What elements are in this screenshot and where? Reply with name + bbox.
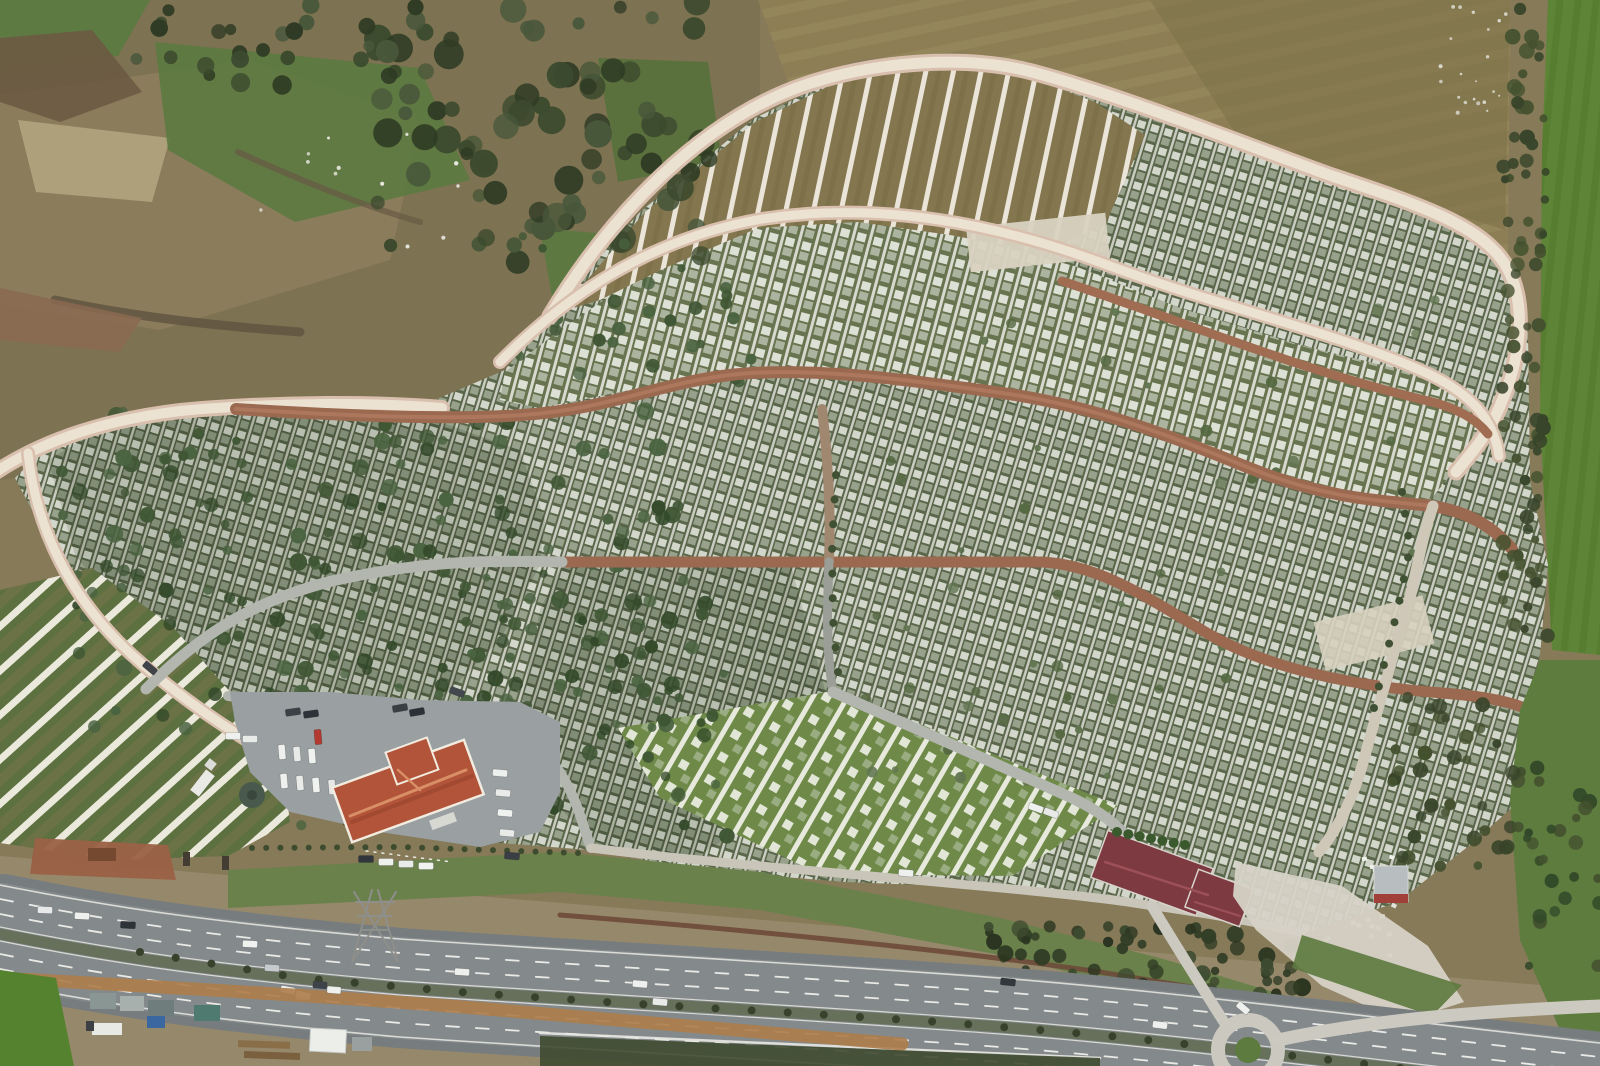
east-slope-trees	[1534, 776, 1545, 787]
parked-car	[495, 789, 511, 797]
tree-line-east	[1510, 411, 1521, 422]
cemetery-trees-old	[72, 484, 88, 500]
cemetery-trees-lowerright	[1108, 694, 1119, 705]
cemetery-trees-right	[1386, 436, 1395, 445]
cemetery-trees-old	[208, 687, 222, 701]
cemetery-trees-old	[554, 679, 567, 692]
cemetery-trees-old	[505, 653, 515, 663]
boundary-hedge	[362, 844, 368, 850]
forest-arm	[211, 24, 226, 39]
field-specks	[1451, 5, 1455, 9]
east-slope-brush	[1442, 715, 1450, 723]
cemetery-trees-old	[396, 459, 406, 469]
forest-canopy	[371, 88, 392, 109]
white-tent	[309, 1028, 346, 1053]
east-slope-brush	[1431, 698, 1447, 714]
cemetery-trees-old	[324, 528, 333, 537]
cemetery-trees-right	[1372, 304, 1384, 316]
tree-line-east	[1531, 536, 1539, 544]
field-specks	[1458, 5, 1462, 9]
cemetery-trees-old	[111, 706, 121, 716]
forest-canopy	[592, 171, 605, 184]
tree-line-east	[1531, 471, 1543, 483]
parked-car	[379, 859, 394, 866]
cemetery-trees-old	[159, 583, 174, 598]
cemetery-trees-old	[104, 468, 115, 479]
tree-line-east	[1506, 326, 1519, 339]
cemetery-trees-old	[290, 553, 308, 571]
tree-line-east	[1523, 602, 1532, 611]
parked-car	[497, 809, 513, 817]
cemetery-trees-old	[179, 722, 192, 735]
median-trees	[1324, 1056, 1332, 1064]
cemetery-trees-old	[439, 492, 454, 507]
shed-container	[120, 996, 144, 1011]
roadside-trees-east	[1385, 640, 1393, 648]
cemetery-trees-mid	[720, 670, 728, 678]
forest-canopy	[444, 102, 459, 117]
cemetery-trees-band	[519, 232, 527, 240]
cemetery-trees-band	[608, 337, 619, 348]
forest-canopy	[399, 84, 420, 105]
cemetery-trees-right	[1288, 456, 1299, 467]
roadside-trees-vertical	[834, 668, 842, 676]
field-specks	[1472, 11, 1475, 14]
tree-line-east	[1496, 382, 1508, 394]
terrain-stones	[454, 161, 458, 165]
field-specks	[1473, 98, 1476, 101]
roadside-trees-east	[1396, 597, 1404, 605]
east-slope-brush	[1413, 762, 1428, 777]
cemetery-trees-old	[193, 428, 204, 439]
forest-canopy	[683, 17, 706, 40]
east-slope-brush	[1477, 801, 1487, 811]
forest-canopy	[691, 246, 710, 265]
cemetery-trees-band	[538, 244, 547, 253]
cemetery-trees-mid	[608, 680, 622, 694]
field-specks	[1486, 55, 1489, 58]
cemetery-trees-mid	[711, 780, 720, 789]
cemetery-trees-mid	[356, 610, 367, 621]
cemetery-trees-old	[612, 720, 620, 728]
boundary-hedge	[575, 850, 581, 856]
forest-canopy	[493, 114, 519, 140]
cemetery-trees-old	[118, 564, 130, 576]
boundary-hedge	[561, 850, 567, 856]
boundary-hedge	[263, 845, 269, 851]
tree-line-east	[1507, 340, 1521, 354]
brush-band-southeast	[1044, 921, 1056, 933]
cemetery-trees-mid	[678, 575, 689, 586]
east-slope-trees	[1524, 828, 1533, 837]
cemetery-trees-mid	[706, 710, 718, 722]
east-slope-trees	[1547, 825, 1556, 834]
tree-line-east	[1503, 217, 1514, 228]
east-slope-trees	[1573, 788, 1587, 802]
roadside-trees-east	[1404, 553, 1412, 561]
parked-vehicle-south	[327, 986, 342, 994]
roadside-trees-east	[1370, 704, 1378, 712]
cemetery-trees-mid	[340, 670, 349, 679]
forest-canopy	[399, 106, 413, 120]
forest-arm	[272, 75, 291, 94]
terrain-stones	[441, 236, 445, 240]
cemetery-trees-old	[605, 665, 613, 673]
cemetery-trees-lowerright	[1055, 729, 1065, 739]
median-trees	[172, 954, 180, 962]
forest-canopy	[406, 162, 431, 187]
east-slope-trees	[1539, 855, 1548, 864]
cemetery-trees-mid	[309, 623, 321, 635]
cemetery-trees-old	[298, 661, 314, 677]
brush-band-southeast	[984, 922, 994, 932]
cemetery-trees-old	[88, 720, 101, 733]
east-slope-brush	[1474, 861, 1483, 870]
brush-band-southeast	[1012, 920, 1029, 937]
tree-line-east	[1496, 535, 1512, 551]
building-hedge	[1123, 829, 1133, 839]
cemetery-trees-old	[129, 543, 143, 557]
boundary-hedge	[433, 845, 439, 851]
field-specks	[1475, 80, 1477, 82]
cemetery-trees-old	[121, 488, 130, 497]
boundary-hedge	[277, 845, 283, 851]
median-trees	[243, 965, 251, 973]
roadside-trees-vertical	[832, 471, 840, 479]
cemetery-trees-old	[524, 593, 535, 604]
field-specks	[1464, 101, 1468, 105]
cemetery-trees-old	[525, 623, 537, 635]
tree-line-east	[1523, 323, 1531, 331]
gate-post	[222, 856, 229, 870]
brush-band-southeast	[1031, 932, 1040, 941]
cemetery-trees-old	[269, 611, 285, 627]
cemetery-trees-mid	[664, 676, 680, 692]
forest-canopy	[580, 78, 596, 94]
boundary-hedge	[547, 849, 553, 855]
cemetery-trees-old	[644, 595, 657, 608]
tree-line-east	[1535, 563, 1545, 573]
cemetery-trees-mid	[467, 649, 476, 658]
cemetery-trees-mid	[614, 654, 629, 669]
tree-line-east	[1511, 269, 1521, 279]
cemetery-trees-old	[203, 586, 212, 595]
cemetery-trees-old	[673, 501, 684, 512]
cemetery-trees-lowerright	[892, 766, 899, 773]
brush-band-southeast	[1273, 976, 1282, 985]
cemetery-trees-old	[140, 507, 156, 523]
brush-band-southeast	[1117, 943, 1128, 954]
cemetery-trees-old	[343, 493, 360, 510]
cemetery-trees-mid	[697, 718, 706, 727]
parked-car	[280, 773, 288, 789]
east-slope-brush	[1396, 851, 1408, 863]
shed-container	[90, 993, 116, 1009]
parked-car	[898, 869, 914, 877]
cemetery-trees-band	[721, 290, 732, 301]
median-trees	[1000, 1023, 1008, 1031]
tree-line-east	[1539, 230, 1547, 238]
forest-canopy	[701, 151, 718, 168]
east-slope-trees	[1578, 801, 1592, 815]
median-trees	[784, 1009, 792, 1017]
cemetery-trees-old	[204, 498, 218, 512]
cemetery-trees-lowerright	[1053, 590, 1063, 600]
tree-line-east	[1527, 498, 1540, 511]
roadside-trees-vertical	[831, 496, 839, 504]
cemetery-trees-old	[164, 618, 176, 630]
cemetery-trees-mid	[648, 723, 657, 732]
building-hedge	[1135, 831, 1145, 841]
east-slope-brush	[1418, 746, 1433, 761]
east-slope-trees	[1569, 872, 1579, 882]
cemetery-trees-old	[131, 568, 145, 582]
cemetery-trees-old	[637, 683, 652, 698]
brush-band-southeast	[1138, 940, 1147, 949]
median-trees	[351, 979, 359, 987]
parked-car	[492, 769, 508, 777]
cemetery-trees-mid	[357, 654, 373, 670]
east-slope-brush	[1468, 835, 1479, 846]
boundary-hedge	[476, 847, 482, 853]
cemetery-trees-old	[423, 544, 437, 558]
loose-headstones	[1362, 857, 1367, 862]
median-trees	[964, 1020, 972, 1028]
forest-arm	[225, 24, 236, 35]
median-trees	[856, 1013, 864, 1021]
median-trees	[820, 1011, 828, 1019]
tree-line-east	[1510, 82, 1525, 97]
parked-car	[499, 829, 515, 837]
cemetery-trees-mid	[658, 714, 671, 727]
cemetery-trees-right	[1095, 596, 1102, 603]
tree-line-east	[1540, 628, 1554, 642]
tree-line-east	[1520, 154, 1534, 168]
building-hedge	[1169, 838, 1179, 848]
forest-arm	[150, 19, 168, 37]
highway-vehicle	[37, 906, 52, 914]
roadside-trees-east	[1380, 661, 1388, 669]
tree-line-east	[1521, 352, 1532, 363]
roadside-trees-east	[1375, 683, 1383, 691]
terrain-stones	[456, 184, 459, 187]
roadside-trees-vertical	[829, 619, 837, 627]
forest-arm	[359, 18, 376, 35]
cemetery-trees-mid	[482, 574, 490, 582]
cemetery-trees-old	[58, 510, 68, 520]
cemetery-trees-old	[460, 581, 471, 592]
tree-line-east	[1523, 524, 1533, 534]
cemetery-trees-mid	[661, 772, 671, 782]
cemetery-trees-mid	[461, 617, 471, 627]
terrain-stones	[259, 208, 262, 211]
cemetery-trees-right	[1145, 382, 1151, 388]
brush-band-southeast	[1211, 967, 1219, 975]
cemetery-trees-right	[1006, 318, 1016, 328]
terrain-stones	[334, 172, 338, 176]
forest-canopy	[478, 229, 495, 246]
field-specks	[1457, 96, 1460, 99]
parked-car	[296, 775, 304, 791]
east-slope-trees	[1533, 909, 1547, 923]
blue-tarp	[147, 1016, 165, 1028]
cemetery-trees-old	[387, 545, 404, 562]
east-slope-brush	[1402, 692, 1413, 703]
brush-band-southeast	[1022, 936, 1031, 945]
roadside-trees-east	[1401, 510, 1409, 518]
roadside-trees-vertical	[828, 545, 836, 553]
forest-canopy	[373, 118, 402, 147]
work-truck-cab	[86, 1021, 94, 1031]
cemetery-trees-right	[1101, 355, 1112, 366]
cemetery-trees-old	[73, 647, 85, 659]
cemetery-trees-band	[642, 277, 655, 290]
cemetery-trees-old	[241, 491, 253, 503]
cemetery-trees-old	[370, 584, 379, 593]
boundary-hedge	[249, 845, 255, 851]
cemetery-trees-right	[1034, 445, 1041, 452]
tree-line-east	[1529, 258, 1543, 272]
boundary-hedge	[348, 844, 354, 850]
parked-car	[308, 748, 316, 764]
cemetery-trees-mid	[508, 677, 523, 692]
cemetery-trees-old	[351, 533, 367, 549]
cemetery-trees-mid	[395, 683, 404, 692]
building-hedge	[1157, 836, 1167, 846]
median-trees	[748, 1006, 756, 1014]
cemetery-trees-old	[237, 596, 247, 606]
roadside-trees-vertical	[829, 520, 837, 528]
cemetery-trees-old	[352, 459, 369, 476]
roadside-trees-east	[1400, 575, 1408, 583]
cemetery-trees-old	[381, 479, 398, 496]
roadside-trees-vertical	[829, 594, 837, 602]
cemetery-trees-right	[1215, 478, 1226, 489]
forest-canopy	[376, 40, 399, 63]
tree-line-east	[1533, 447, 1542, 456]
boundary-hedge	[306, 845, 312, 851]
cemetery-trees-old	[105, 525, 123, 543]
roadside-trees-east	[1391, 618, 1399, 626]
cemetery-trees-old	[495, 506, 510, 521]
cemetery-trees-old	[224, 592, 235, 603]
parked-car	[243, 736, 258, 743]
median-trees	[207, 960, 215, 968]
cemetery-trees-old	[653, 696, 662, 705]
median-trees	[279, 971, 287, 979]
field-specks	[1498, 95, 1500, 97]
forest-arm	[256, 43, 270, 57]
cemetery-trees-mid	[633, 598, 641, 606]
forest-canopy	[573, 17, 585, 29]
boundary-hedge	[320, 845, 326, 851]
cemetery-trees-mid	[435, 691, 444, 700]
brush-band-southeast	[1074, 928, 1086, 940]
forest-canopy	[371, 196, 385, 210]
cemetery-trees-mid	[679, 820, 690, 831]
cemetery-trees-old	[495, 495, 505, 505]
east-slope-trees	[1545, 874, 1559, 888]
tree-line-east	[1540, 114, 1548, 122]
median-trees	[928, 1018, 936, 1026]
median-trees	[1108, 1032, 1116, 1040]
cemetery-trees-band	[619, 238, 630, 249]
building-hedge	[1146, 834, 1156, 844]
parked-car	[312, 777, 320, 793]
tree-line-east	[1518, 69, 1527, 78]
cemetery-trees-mid	[599, 724, 611, 736]
forest-canopy	[428, 101, 447, 120]
brush-band-southeast	[986, 934, 1002, 950]
tree-line-east	[1504, 364, 1513, 373]
cemetery-trees-mid	[435, 679, 449, 693]
cemetery-trees-mid	[642, 751, 654, 763]
cemetery-trees-right	[948, 582, 959, 593]
cemetery-trees-old	[616, 525, 630, 539]
cemetery-trees-old	[195, 498, 204, 507]
boundary-hedge	[419, 845, 425, 851]
cemetery-trees-old	[171, 536, 184, 549]
brush-band-southeast	[1015, 948, 1027, 960]
tree-line-east	[1498, 595, 1508, 605]
tree-line-east	[1514, 380, 1526, 392]
median-trees	[1180, 1040, 1188, 1048]
east-slope-trees	[1572, 814, 1580, 822]
east-slope-trees	[1558, 892, 1571, 905]
cemetery-trees-old	[636, 402, 654, 420]
terrain-stones	[307, 152, 310, 155]
east-slope-brush	[1408, 830, 1422, 844]
parked-car	[504, 852, 520, 860]
cemetery-trees-right	[958, 547, 964, 553]
terrain-stones	[405, 133, 408, 136]
highway-vehicle	[120, 921, 135, 929]
cemetery-trees-lowerright	[1155, 684, 1164, 693]
cemetery-trees-band	[646, 359, 660, 373]
cemetery-trees-old	[237, 458, 247, 468]
scene-canvas	[0, 0, 1600, 1066]
cemetery-trees-old	[603, 514, 614, 525]
median-trees	[712, 1004, 720, 1012]
parked-car	[359, 856, 374, 863]
cemetery-trees-old	[163, 465, 179, 481]
east-slope-brush	[1459, 730, 1474, 745]
cemetery-trees-band	[573, 367, 586, 380]
forest-canopy	[638, 102, 655, 119]
cemetery-trees-band	[664, 314, 676, 326]
terrain-stones	[337, 166, 341, 170]
parked-car	[419, 863, 434, 870]
boundary-hedge	[292, 845, 298, 851]
tree-line-east	[1521, 169, 1530, 178]
brush-band-southeast	[1204, 936, 1217, 949]
tree-line-east	[1542, 168, 1550, 176]
median-trees	[1288, 1052, 1296, 1060]
cemetery-trees-mid	[582, 745, 598, 761]
east-slope-brush	[1416, 811, 1427, 822]
tree-line-east	[1516, 236, 1526, 246]
field-specks	[1449, 37, 1452, 40]
cemetery-trees-mid	[696, 608, 708, 620]
gate-cabin	[88, 848, 116, 861]
forest-canopy	[506, 250, 530, 274]
brush-band-southeast	[1034, 949, 1051, 966]
tree-line-east	[1515, 558, 1526, 569]
cemetery-trees-old	[232, 437, 240, 445]
boundary-hedge	[490, 847, 496, 853]
cemetery-trees-band	[643, 305, 656, 318]
cemetery-trees-lowerright	[873, 611, 882, 620]
